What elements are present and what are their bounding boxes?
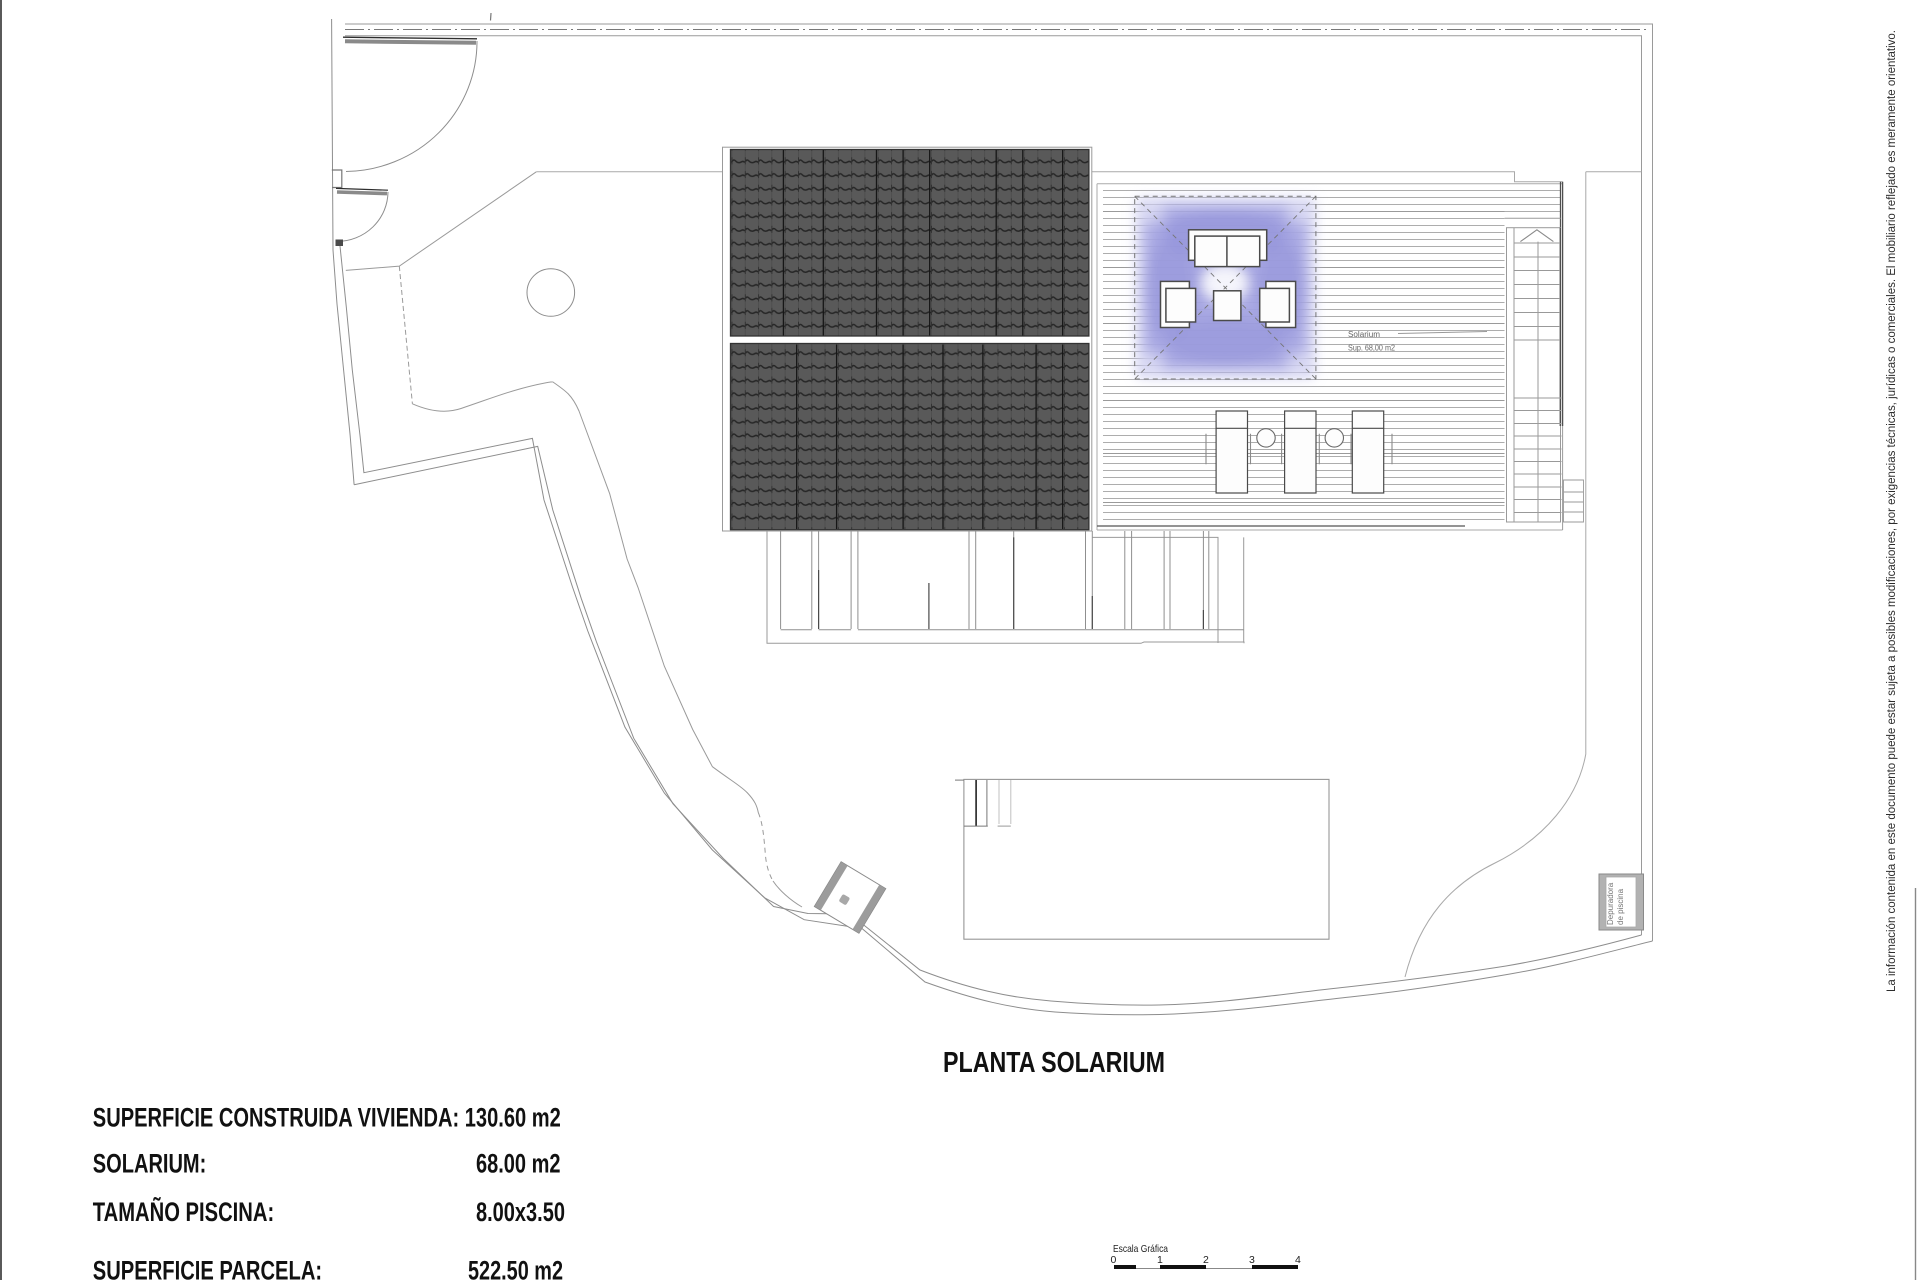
svg-text:68.00 m2: 68.00 m2 (476, 1149, 561, 1179)
svg-text:SUPERFICIE CONSTRUIDA VIVIENDA: SUPERFICIE CONSTRUIDA VIVIENDA: 130.60 m… (93, 1103, 561, 1133)
svg-text:SUPERFICIE PARCELA:: SUPERFICIE PARCELA: (93, 1256, 322, 1280)
svg-text:8.00x3.50: 8.00x3.50 (476, 1197, 565, 1227)
svg-text:522.50 m2: 522.50 m2 (468, 1256, 563, 1280)
svg-text:SOLARIUM:: SOLARIUM: (93, 1149, 207, 1179)
svg-text:4: 4 (1295, 1254, 1301, 1266)
svg-text:TAMAÑO PISCINA:: TAMAÑO PISCINA: (93, 1197, 274, 1227)
svg-text:de piscina: de piscina (1616, 888, 1625, 925)
svg-text:1: 1 (1157, 1254, 1163, 1266)
svg-text:Sup. 68,00 m2: Sup. 68,00 m2 (1348, 344, 1395, 353)
svg-text:3: 3 (1249, 1254, 1255, 1266)
svg-text:Depuradora: Depuradora (1606, 882, 1615, 925)
svg-text:PLANTA SOLARIUM: PLANTA SOLARIUM (943, 1046, 1165, 1078)
svg-text:La información contenida en es: La información contenida en este documen… (1884, 30, 1898, 992)
svg-text:2: 2 (1203, 1254, 1209, 1266)
svg-text:0: 0 (1111, 1254, 1117, 1266)
svg-text:Solarium: Solarium (1348, 330, 1380, 339)
